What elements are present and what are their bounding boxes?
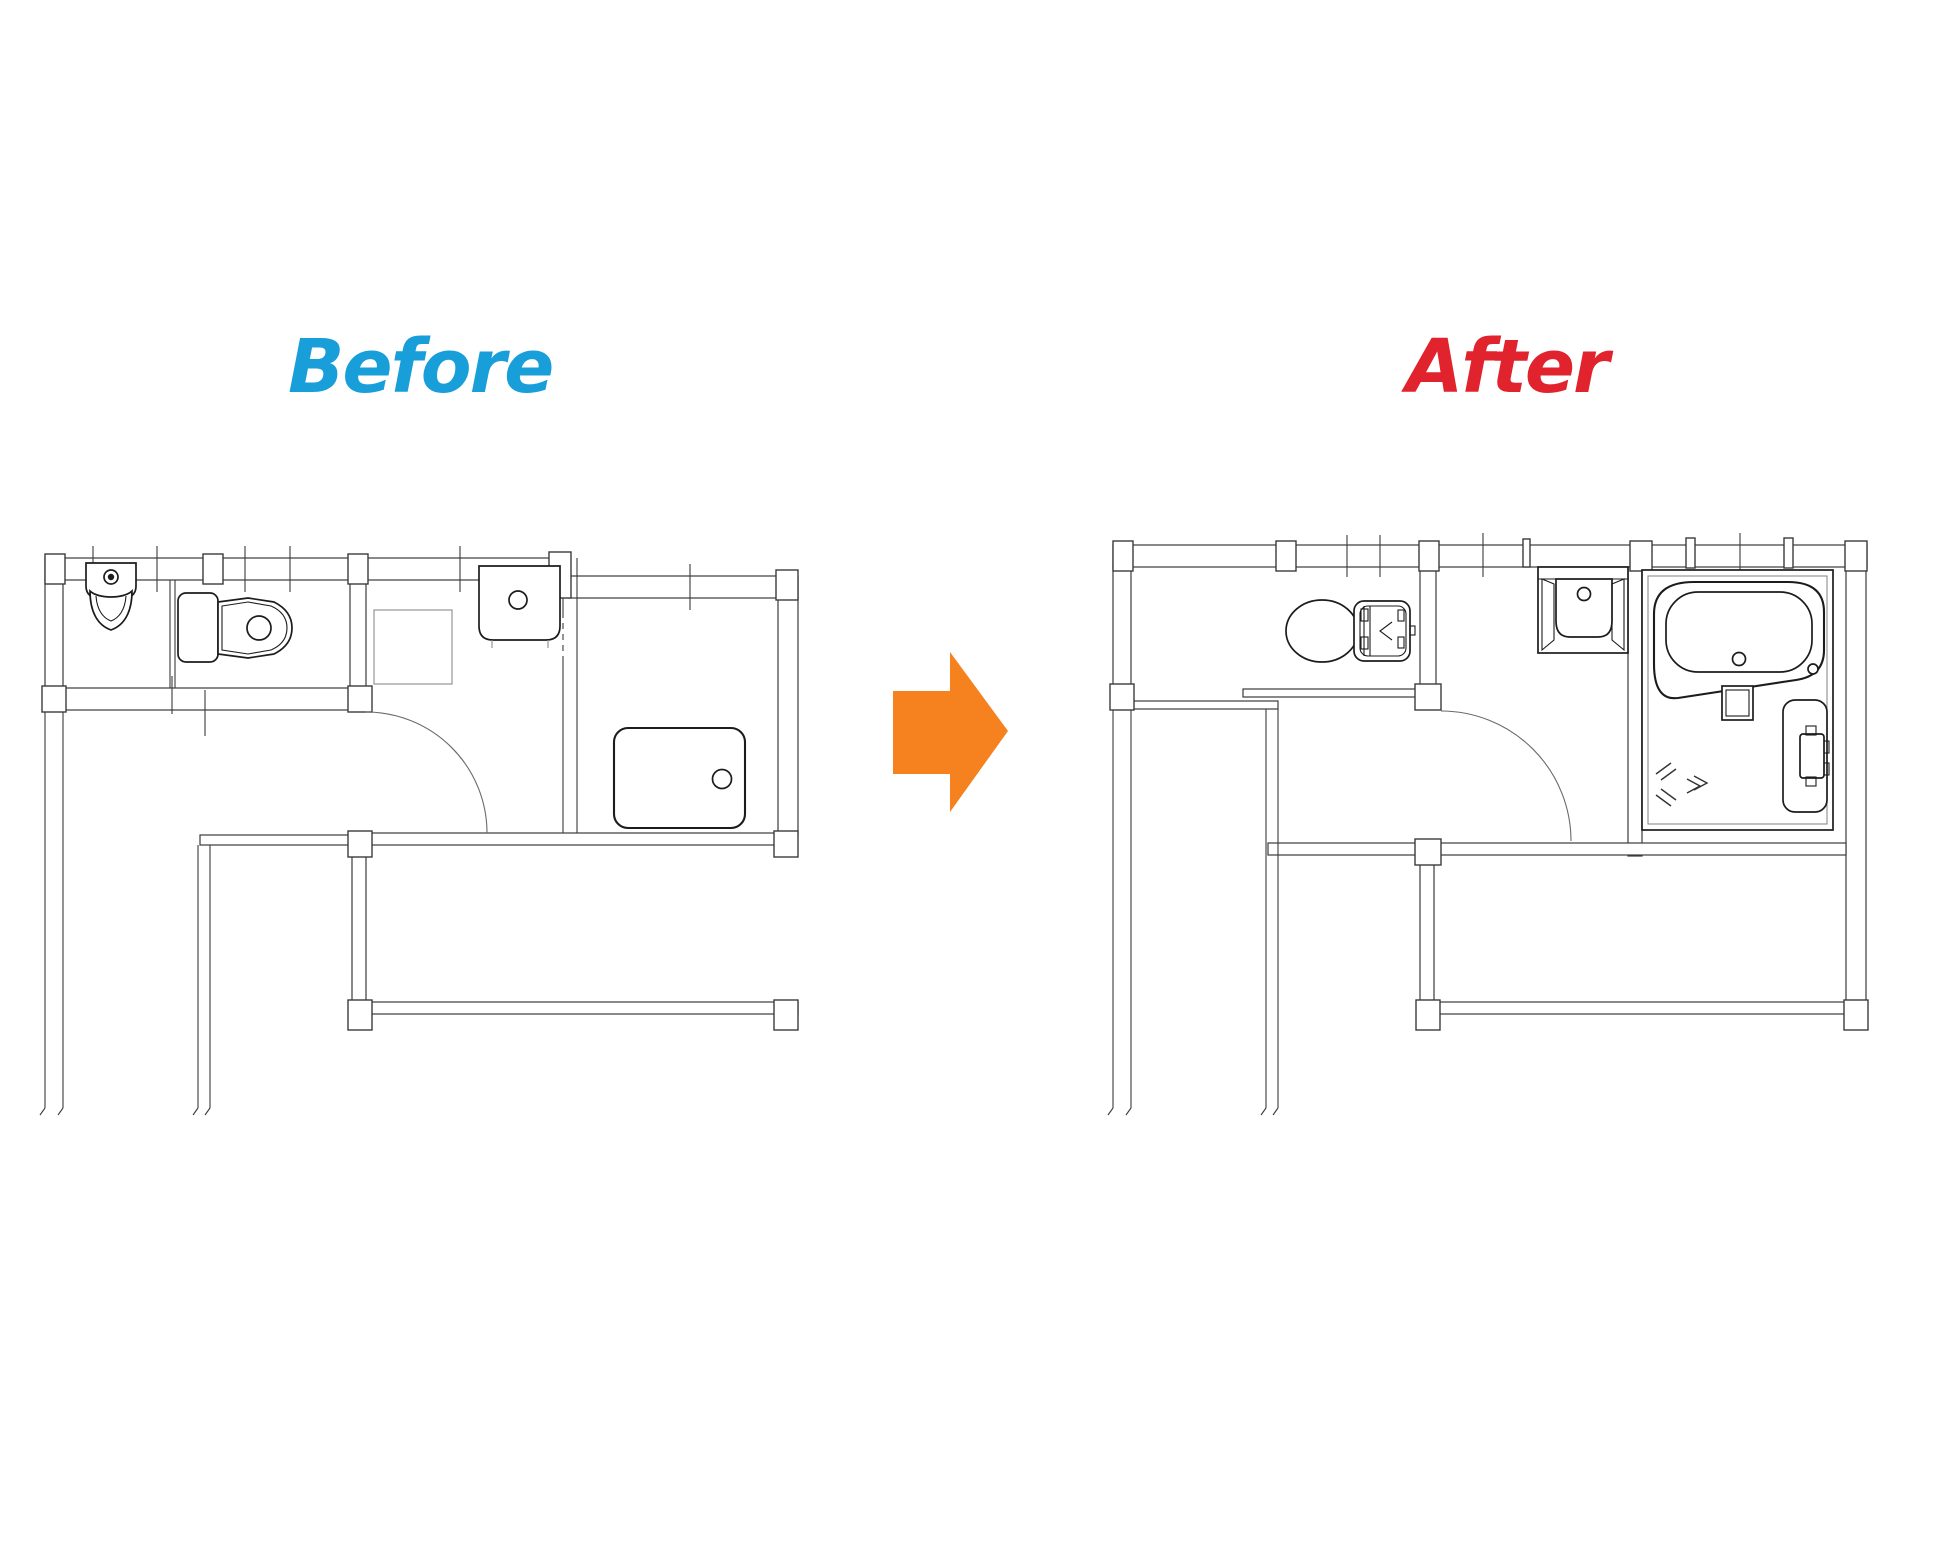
column [1415,684,1441,710]
column [1276,541,1296,571]
after-floor-plan [1108,533,1868,1115]
vanity-basin-icon [1538,567,1628,653]
toilet-tank [178,593,218,662]
hinged-door-swing [366,712,487,833]
wall-end-tail [1126,1108,1131,1115]
after-title: After [1401,324,1614,410]
toilet-icon [178,593,292,662]
faucet [509,591,527,609]
bottom-wall [352,833,778,845]
wall-end-tail [1108,1108,1113,1115]
wall-end-tail [40,1108,45,1115]
window-jamb [1686,538,1695,568]
toilet-bowl [1286,600,1358,662]
lower-wall [1420,855,1434,1002]
before-floor-plan [40,546,798,1115]
divider-wall [1628,567,1642,856]
column [1845,541,1867,571]
column [1415,839,1441,865]
sliding-door-leaf [1243,689,1419,697]
shower-step [1722,686,1753,720]
bottom-wall-thin [200,835,352,845]
faucet [1578,588,1591,601]
floor-plan-comparison-graphic: Before After [0,0,1939,1552]
column [774,1000,798,1030]
column [348,686,372,712]
column [348,831,372,857]
bathtub-fitting [1808,664,1818,674]
column [348,554,368,584]
wall-end-tail [58,1108,63,1115]
page: Before After [0,0,1939,1552]
column [45,554,65,584]
before-title: Before [288,324,552,410]
column [203,554,223,584]
bathtub-icon [614,728,745,828]
wall-end-tail [1273,1108,1278,1115]
column [1419,541,1439,571]
column [42,686,66,712]
hinged-door-swing [1441,711,1571,841]
lower-wall [352,855,366,1002]
right-arrow-icon [893,652,1008,812]
column [1110,684,1134,710]
washing-machine-pan-icon [374,610,452,684]
toilet-room-right-wall [350,580,366,688]
column [1416,1000,1440,1030]
column [1630,541,1652,571]
column [776,570,798,600]
mixer-body [1800,734,1824,778]
column [774,831,798,857]
unit-bath-icon [1642,570,1833,830]
bathtub-drain [713,770,732,789]
lower-room-wall [352,1002,798,1014]
window-jamb [1523,539,1530,567]
column [1113,541,1133,571]
toilet-drain [247,616,271,640]
column [1844,1000,1868,1030]
sliding-door-leaf [1131,701,1278,709]
wall-end-tail [205,1108,210,1115]
bathtub-drain [1733,653,1746,666]
top-wall [1113,545,1867,567]
column [348,1000,372,1030]
flush-valve-dot [108,574,114,580]
urinal-icon [86,563,136,630]
bottom-wall-thin [1268,843,1846,855]
lower-room-wall [1420,1002,1866,1014]
wall-end-tail [193,1108,198,1115]
toilet-room-right-wall [1420,567,1436,686]
right-wall [1846,567,1866,1002]
tankless-toilet-icon [1286,600,1415,662]
before-walls [40,558,798,1115]
washbasin-icon [479,566,560,648]
window-jamb [1784,538,1793,568]
middle-wall [45,688,370,710]
left-wall-upper [45,580,63,688]
bathroom-top-wall [568,576,798,598]
wall-end-tail [1261,1108,1266,1115]
right-wall [778,598,798,835]
left-wall-upper [1113,567,1131,686]
